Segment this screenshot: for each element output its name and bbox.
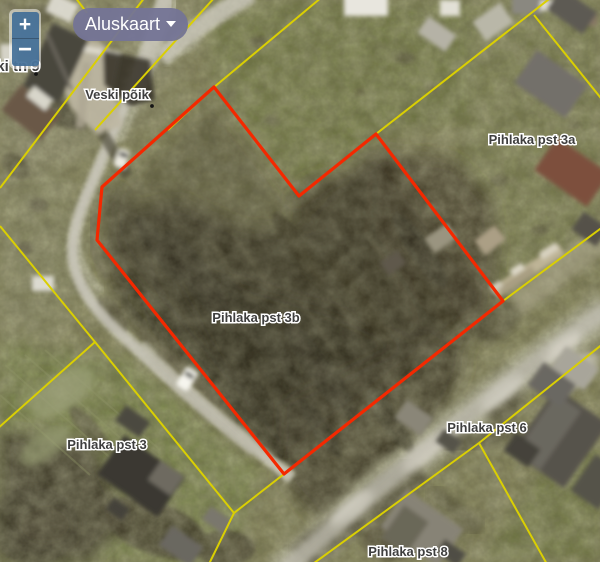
- svg-text:Pihlaka pst 6: Pihlaka pst 6: [447, 420, 526, 435]
- svg-text:Pihlaka pst 3b: Pihlaka pst 3b: [212, 310, 299, 325]
- svg-text:Pihlaka pst 3: Pihlaka pst 3: [67, 437, 146, 452]
- svg-text:Veski põik: Veski põik: [85, 87, 149, 102]
- svg-text:Pihlaka pst 8: Pihlaka pst 8: [368, 544, 447, 559]
- svg-text:Pihlaka pst 3a: Pihlaka pst 3a: [489, 132, 576, 147]
